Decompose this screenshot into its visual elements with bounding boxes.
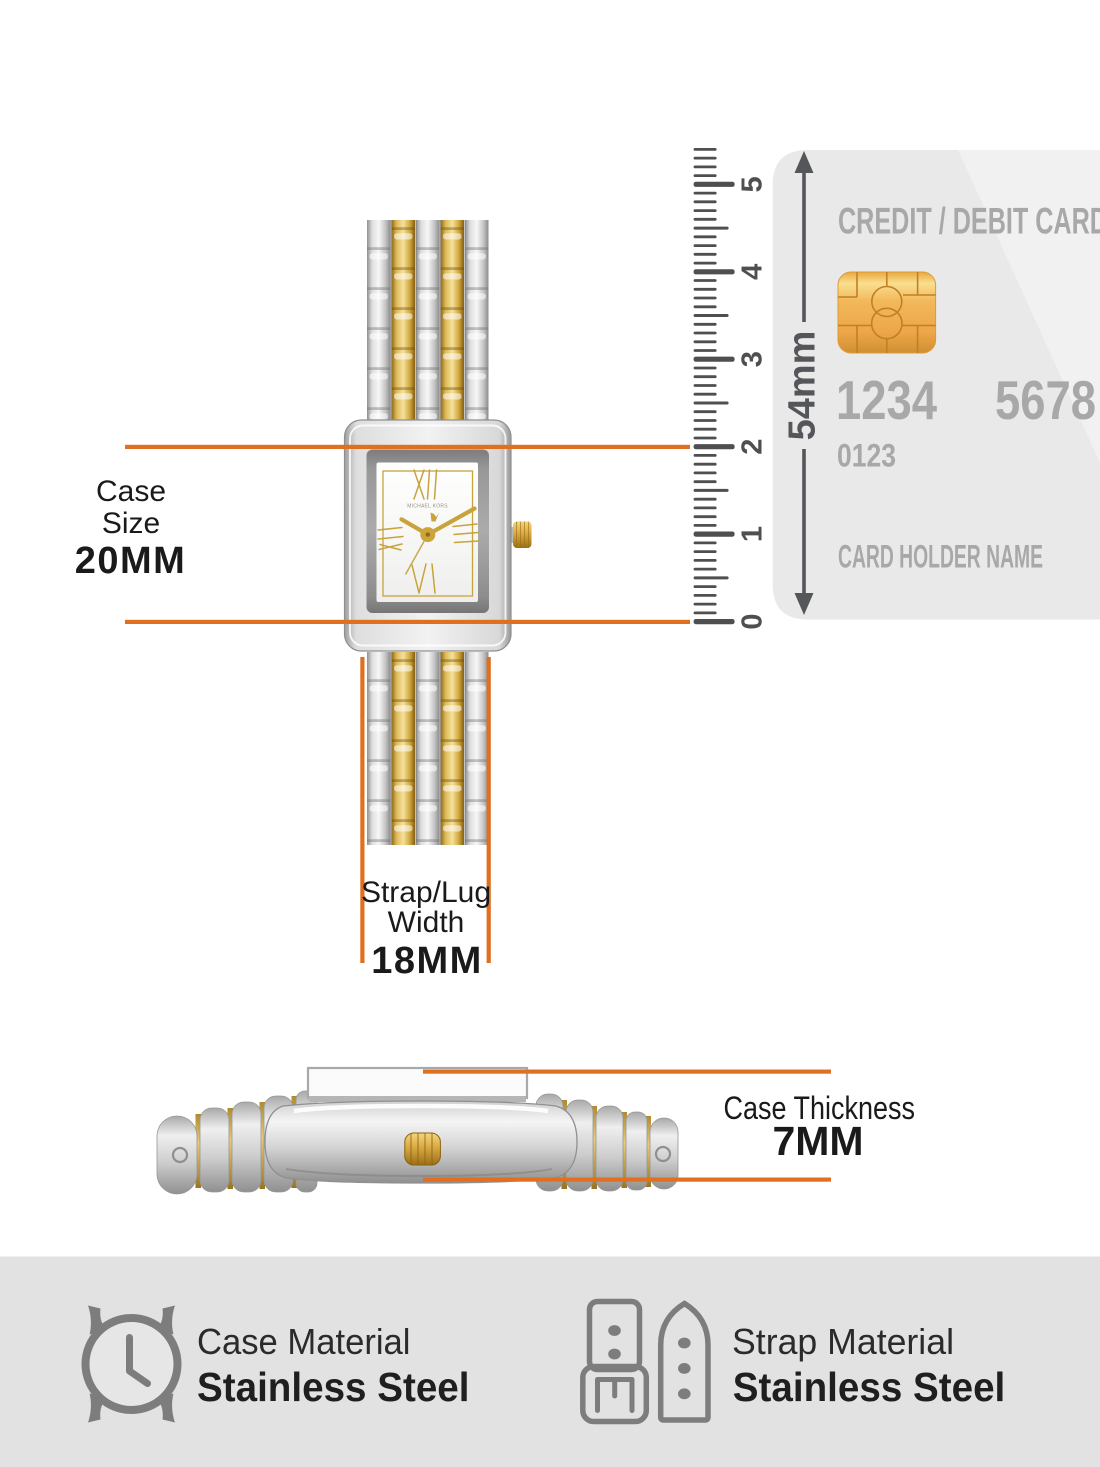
- svg-text:CARD HOLDER NAME: CARD HOLDER NAME: [838, 539, 1043, 575]
- svg-text:Size: Size: [102, 507, 160, 540]
- svg-text:3: 3: [737, 351, 769, 367]
- svg-text:4: 4: [737, 264, 769, 280]
- svg-text:1234: 1234: [836, 369, 937, 431]
- svg-text:0123: 0123: [837, 438, 896, 474]
- svg-text:Stainless Steel: Stainless Steel: [197, 1364, 470, 1410]
- svg-text:5678: 5678: [995, 369, 1096, 431]
- svg-text:MICHAEL KORS: MICHAEL KORS: [407, 504, 448, 510]
- svg-text:Width: Width: [388, 906, 465, 939]
- svg-text:7MM: 7MM: [772, 1118, 863, 1164]
- svg-text:Case Material: Case Material: [197, 1321, 411, 1362]
- svg-text:Case: Case: [96, 475, 166, 508]
- svg-text:54mm: 54mm: [782, 331, 824, 441]
- svg-text:18MM: 18MM: [371, 940, 483, 982]
- svg-text:1: 1: [737, 526, 769, 542]
- svg-text:2: 2: [737, 439, 769, 455]
- svg-text:CREDIT / DEBIT CARD: CREDIT / DEBIT CARD: [838, 201, 1100, 242]
- svg-text:0: 0: [737, 614, 769, 630]
- svg-text:Strap Material: Strap Material: [732, 1321, 954, 1362]
- svg-text:Stainless Steel: Stainless Steel: [733, 1364, 1006, 1410]
- svg-text:5: 5: [737, 176, 769, 192]
- svg-text:Strap/Lug: Strap/Lug: [361, 876, 491, 909]
- svg-text:20MM: 20MM: [75, 540, 187, 582]
